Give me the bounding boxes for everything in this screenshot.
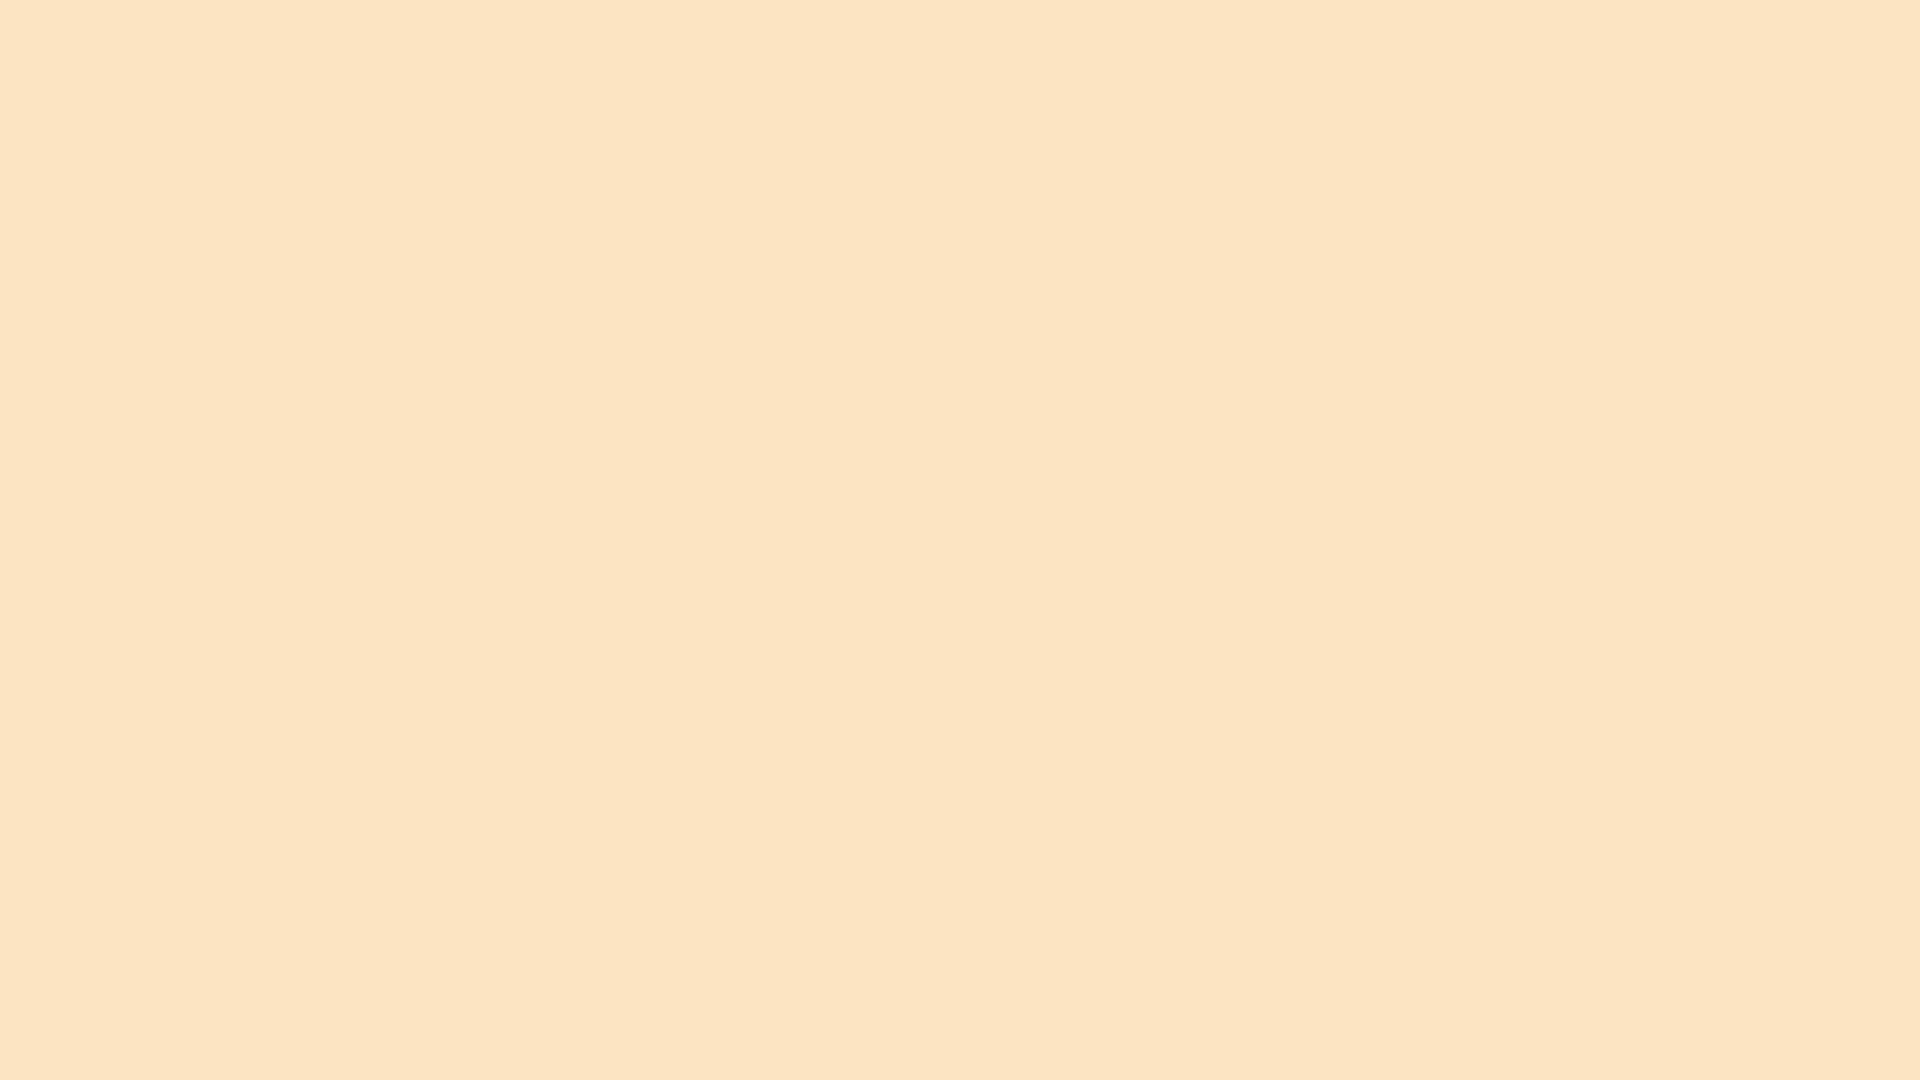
game-viewport [0, 0, 1920, 1080]
game-scene[interactable] [0, 0, 1920, 1080]
